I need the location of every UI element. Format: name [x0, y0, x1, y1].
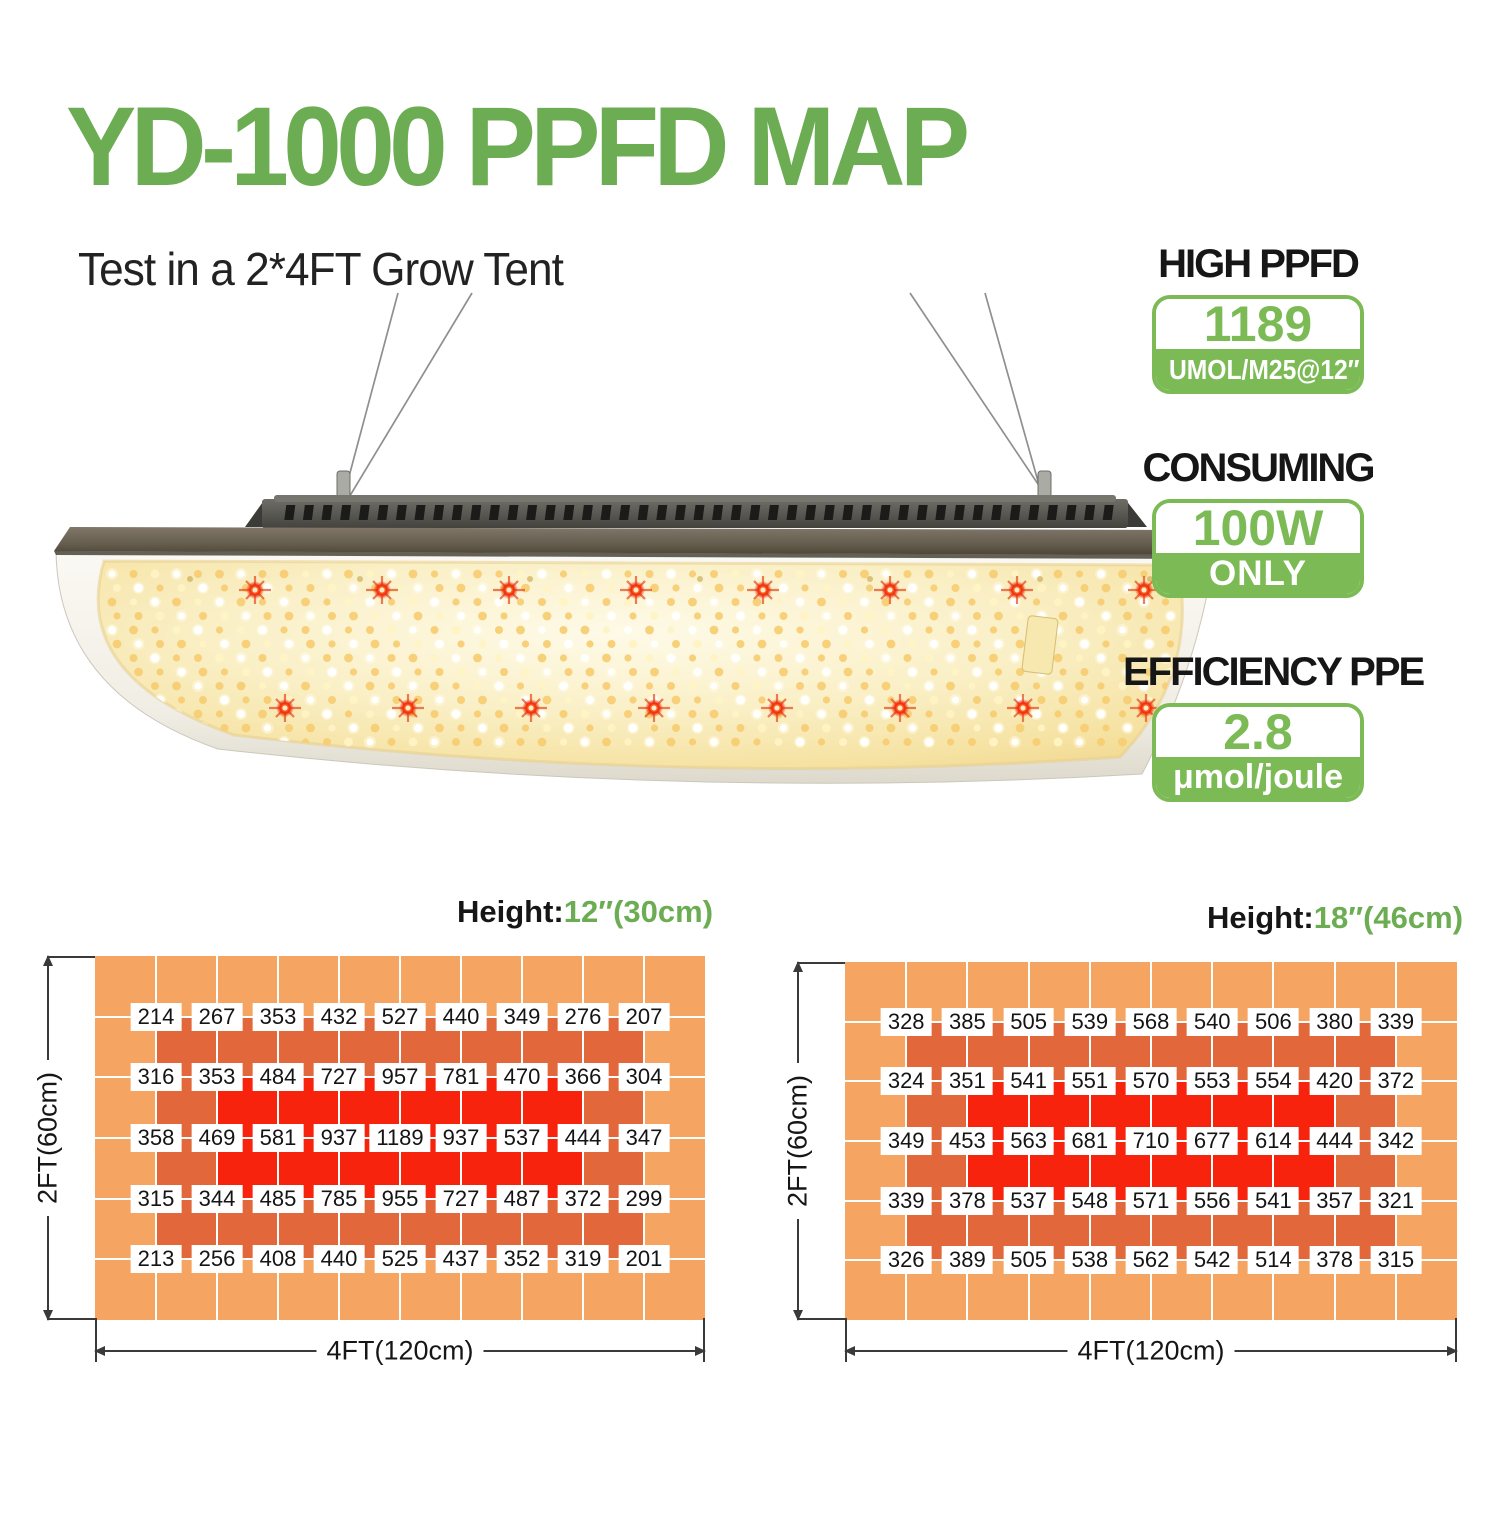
ppfd-heatmap-grid: 3283855055395685405063803393243515415515… [845, 962, 1457, 1320]
ppfd-value-label: 470 [497, 1063, 548, 1091]
hanging-wires [343, 293, 1048, 499]
ppfd-value-label: 937 [314, 1124, 365, 1152]
ppfd-value-label: 385 [942, 1008, 993, 1036]
stat-heading: EFFICIENCY PPE [1123, 650, 1393, 695]
ppfd-value-label: 267 [192, 1003, 243, 1031]
y-axis-label: 2FT(60cm) [783, 1063, 814, 1219]
ppfd-value-label: 344 [192, 1185, 243, 1213]
y-axis-label: 2FT(60cm) [33, 1060, 64, 1216]
ppfd-value-label: 548 [1064, 1187, 1115, 1215]
ppfd-value-label: 551 [1064, 1067, 1115, 1095]
stat-value: 1189 [1156, 299, 1360, 349]
panel-top-bar [54, 527, 1216, 555]
stat-badge: 2.8 μmol/joule [1152, 703, 1364, 802]
height-dimension-line: 2FT(60cm) [47, 956, 95, 1320]
ppfd-value-label: 541 [1248, 1187, 1299, 1215]
ppfd-value-label: 563 [1003, 1127, 1054, 1155]
grow-light-image [40, 287, 1270, 807]
ppfd-value-label: 299 [619, 1185, 670, 1213]
ppfd-value-label: 781 [436, 1063, 487, 1091]
stat-efficiency-ppe: EFFICIENCY PPE 2.8 μmol/joule [1123, 650, 1393, 802]
ppfd-value-label: 358 [131, 1124, 182, 1152]
ppfd-value-label: 420 [1309, 1067, 1360, 1095]
ppfd-value-label: 727 [436, 1185, 487, 1213]
ppfd-value-label: 342 [1370, 1127, 1421, 1155]
ppfd-value-label: 440 [314, 1245, 365, 1273]
ppfd-value-label: 339 [881, 1187, 932, 1215]
stat-badge: 1189 UMOL/M25@12″ [1152, 295, 1364, 394]
stat-consuming: CONSUMING 100W ONLY [1123, 446, 1393, 598]
stat-unit: UMOL/M25@12″ [1156, 349, 1360, 390]
map-title: Height:12″(30cm) [457, 894, 713, 930]
ppfd-value-label: 568 [1126, 1008, 1177, 1036]
ppfd-value-label: 681 [1064, 1127, 1115, 1155]
ppfd-value-label: 537 [1003, 1187, 1054, 1215]
ppfd-value-label: 437 [436, 1245, 487, 1273]
stat-high-ppfd: HIGH PPFD 1189 UMOL/M25@12″ [1123, 242, 1393, 394]
ppfd-value-label: 366 [558, 1063, 609, 1091]
driver-label [1022, 615, 1059, 674]
ppfd-value-label: 326 [881, 1246, 932, 1274]
ppfd-map-18in: Height:18″(46cm) 32838550553956854050638… [845, 962, 1457, 1320]
ppfd-value-label: 542 [1187, 1246, 1238, 1274]
ppfd-value-label: 540 [1187, 1008, 1238, 1036]
ppfd-value-label: 349 [881, 1127, 932, 1155]
ppfd-value-label: 315 [131, 1185, 182, 1213]
ppfd-value-label: 514 [1248, 1246, 1299, 1274]
ppfd-value-label: 937 [436, 1124, 487, 1152]
ppfd-value-label: 581 [253, 1124, 304, 1152]
ppfd-map-12in: Height:12″(30cm) 21426735343252744034927… [95, 956, 705, 1320]
ppfd-value-label: 357 [1309, 1187, 1360, 1215]
ppfd-value-label: 570 [1126, 1067, 1177, 1095]
ppfd-value-label: 556 [1187, 1187, 1238, 1215]
ppfd-value-label: 955 [375, 1185, 426, 1213]
ppfd-value-label: 324 [881, 1067, 932, 1095]
ppfd-value-label: 380 [1309, 1008, 1360, 1036]
ppfd-value-label: 201 [619, 1245, 670, 1273]
ppfd-value-label: 710 [1126, 1127, 1177, 1155]
x-axis-label: 4FT(120cm) [1067, 1336, 1234, 1367]
ppfd-value-label: 207 [619, 1003, 670, 1031]
ppfd-value-label: 484 [253, 1063, 304, 1091]
ppfd-value-label: 304 [619, 1063, 670, 1091]
ppfd-value-label: 487 [497, 1185, 548, 1213]
height-dimension-line: 2FT(60cm) [797, 962, 845, 1320]
ppfd-value-label: 453 [942, 1127, 993, 1155]
ppfd-value-label: 506 [1248, 1008, 1299, 1036]
ppfd-value-label: 485 [253, 1185, 304, 1213]
ppfd-value-label: 553 [1187, 1067, 1238, 1095]
ppfd-value-label: 339 [1370, 1008, 1421, 1036]
ppfd-value-label: 440 [436, 1003, 487, 1031]
stat-heading: HIGH PPFD [1123, 242, 1393, 287]
ppfd-value-label: 537 [497, 1124, 548, 1152]
ppfd-value-label: 214 [131, 1003, 182, 1031]
ppfd-value-label: 677 [1187, 1127, 1238, 1155]
ppfd-value-label: 351 [942, 1067, 993, 1095]
ppfd-value-label: 353 [192, 1063, 243, 1091]
ppfd-value-label: 352 [497, 1245, 548, 1273]
ppfd-value-label: 571 [1126, 1187, 1177, 1215]
ppfd-value-label: 347 [619, 1124, 670, 1152]
ppfd-value-label: 378 [1309, 1246, 1360, 1274]
page-title: YD-1000 PPFD MAP [66, 88, 965, 206]
stat-unit: μmol/joule [1156, 757, 1360, 798]
ppfd-value-label: 372 [1370, 1067, 1421, 1095]
ppfd-value-label: 316 [131, 1063, 182, 1091]
ppfd-value-label: 538 [1064, 1246, 1115, 1274]
stat-value: 100W [1156, 503, 1360, 553]
ppfd-value-label: 539 [1064, 1008, 1115, 1036]
ppfd-value-label: 315 [1370, 1246, 1421, 1274]
ppfd-value-label: 554 [1248, 1067, 1299, 1095]
ppfd-value-label: 319 [558, 1245, 609, 1273]
ppfd-value-label: 785 [314, 1185, 365, 1213]
ppfd-value-label: 527 [375, 1003, 426, 1031]
ppfd-value-label: 444 [558, 1124, 609, 1152]
ppfd-heatmap-grid: 2142673534325274403492762073163534847279… [95, 956, 705, 1320]
ppfd-value-label: 957 [375, 1063, 426, 1091]
map-title: Height:18″(46cm) [1207, 900, 1463, 936]
ppfd-value-label: 389 [942, 1246, 993, 1274]
ppfd-value-label: 256 [192, 1245, 243, 1273]
width-dimension-line: 4FT(120cm) [95, 1350, 705, 1352]
ppfd-value-label: 505 [1003, 1008, 1054, 1036]
ppfd-value-label: 444 [1309, 1127, 1360, 1155]
ppfd-value-label: 353 [253, 1003, 304, 1031]
ppfd-value-label: 372 [558, 1185, 609, 1213]
ppfd-value-label: 213 [131, 1245, 182, 1273]
x-axis-label: 4FT(120cm) [316, 1336, 483, 1367]
heatsink [245, 495, 1147, 528]
ppfd-value-label: 727 [314, 1063, 365, 1091]
ppfd-value-label: 1189 [369, 1124, 430, 1152]
ppfd-value-label: 541 [1003, 1067, 1054, 1095]
stat-heading: CONSUMING [1123, 446, 1393, 491]
ppfd-value-label: 378 [942, 1187, 993, 1215]
ppfd-value-label: 408 [253, 1245, 304, 1273]
stat-value: 2.8 [1156, 707, 1360, 757]
ppfd-value-label: 432 [314, 1003, 365, 1031]
ppfd-value-label: 321 [1370, 1187, 1421, 1215]
stat-badge: 100W ONLY [1152, 499, 1364, 598]
ppfd-value-label: 562 [1126, 1246, 1177, 1274]
ppfd-value-label: 505 [1003, 1246, 1054, 1274]
ppfd-value-label: 614 [1248, 1127, 1299, 1155]
stat-unit: ONLY [1156, 553, 1360, 594]
ppfd-value-label: 276 [558, 1003, 609, 1031]
ppfd-value-label: 469 [192, 1124, 243, 1152]
width-dimension-line: 4FT(120cm) [845, 1350, 1457, 1352]
ppfd-value-label: 349 [497, 1003, 548, 1031]
ppfd-value-label: 328 [881, 1008, 932, 1036]
ppfd-value-label: 525 [375, 1245, 426, 1273]
